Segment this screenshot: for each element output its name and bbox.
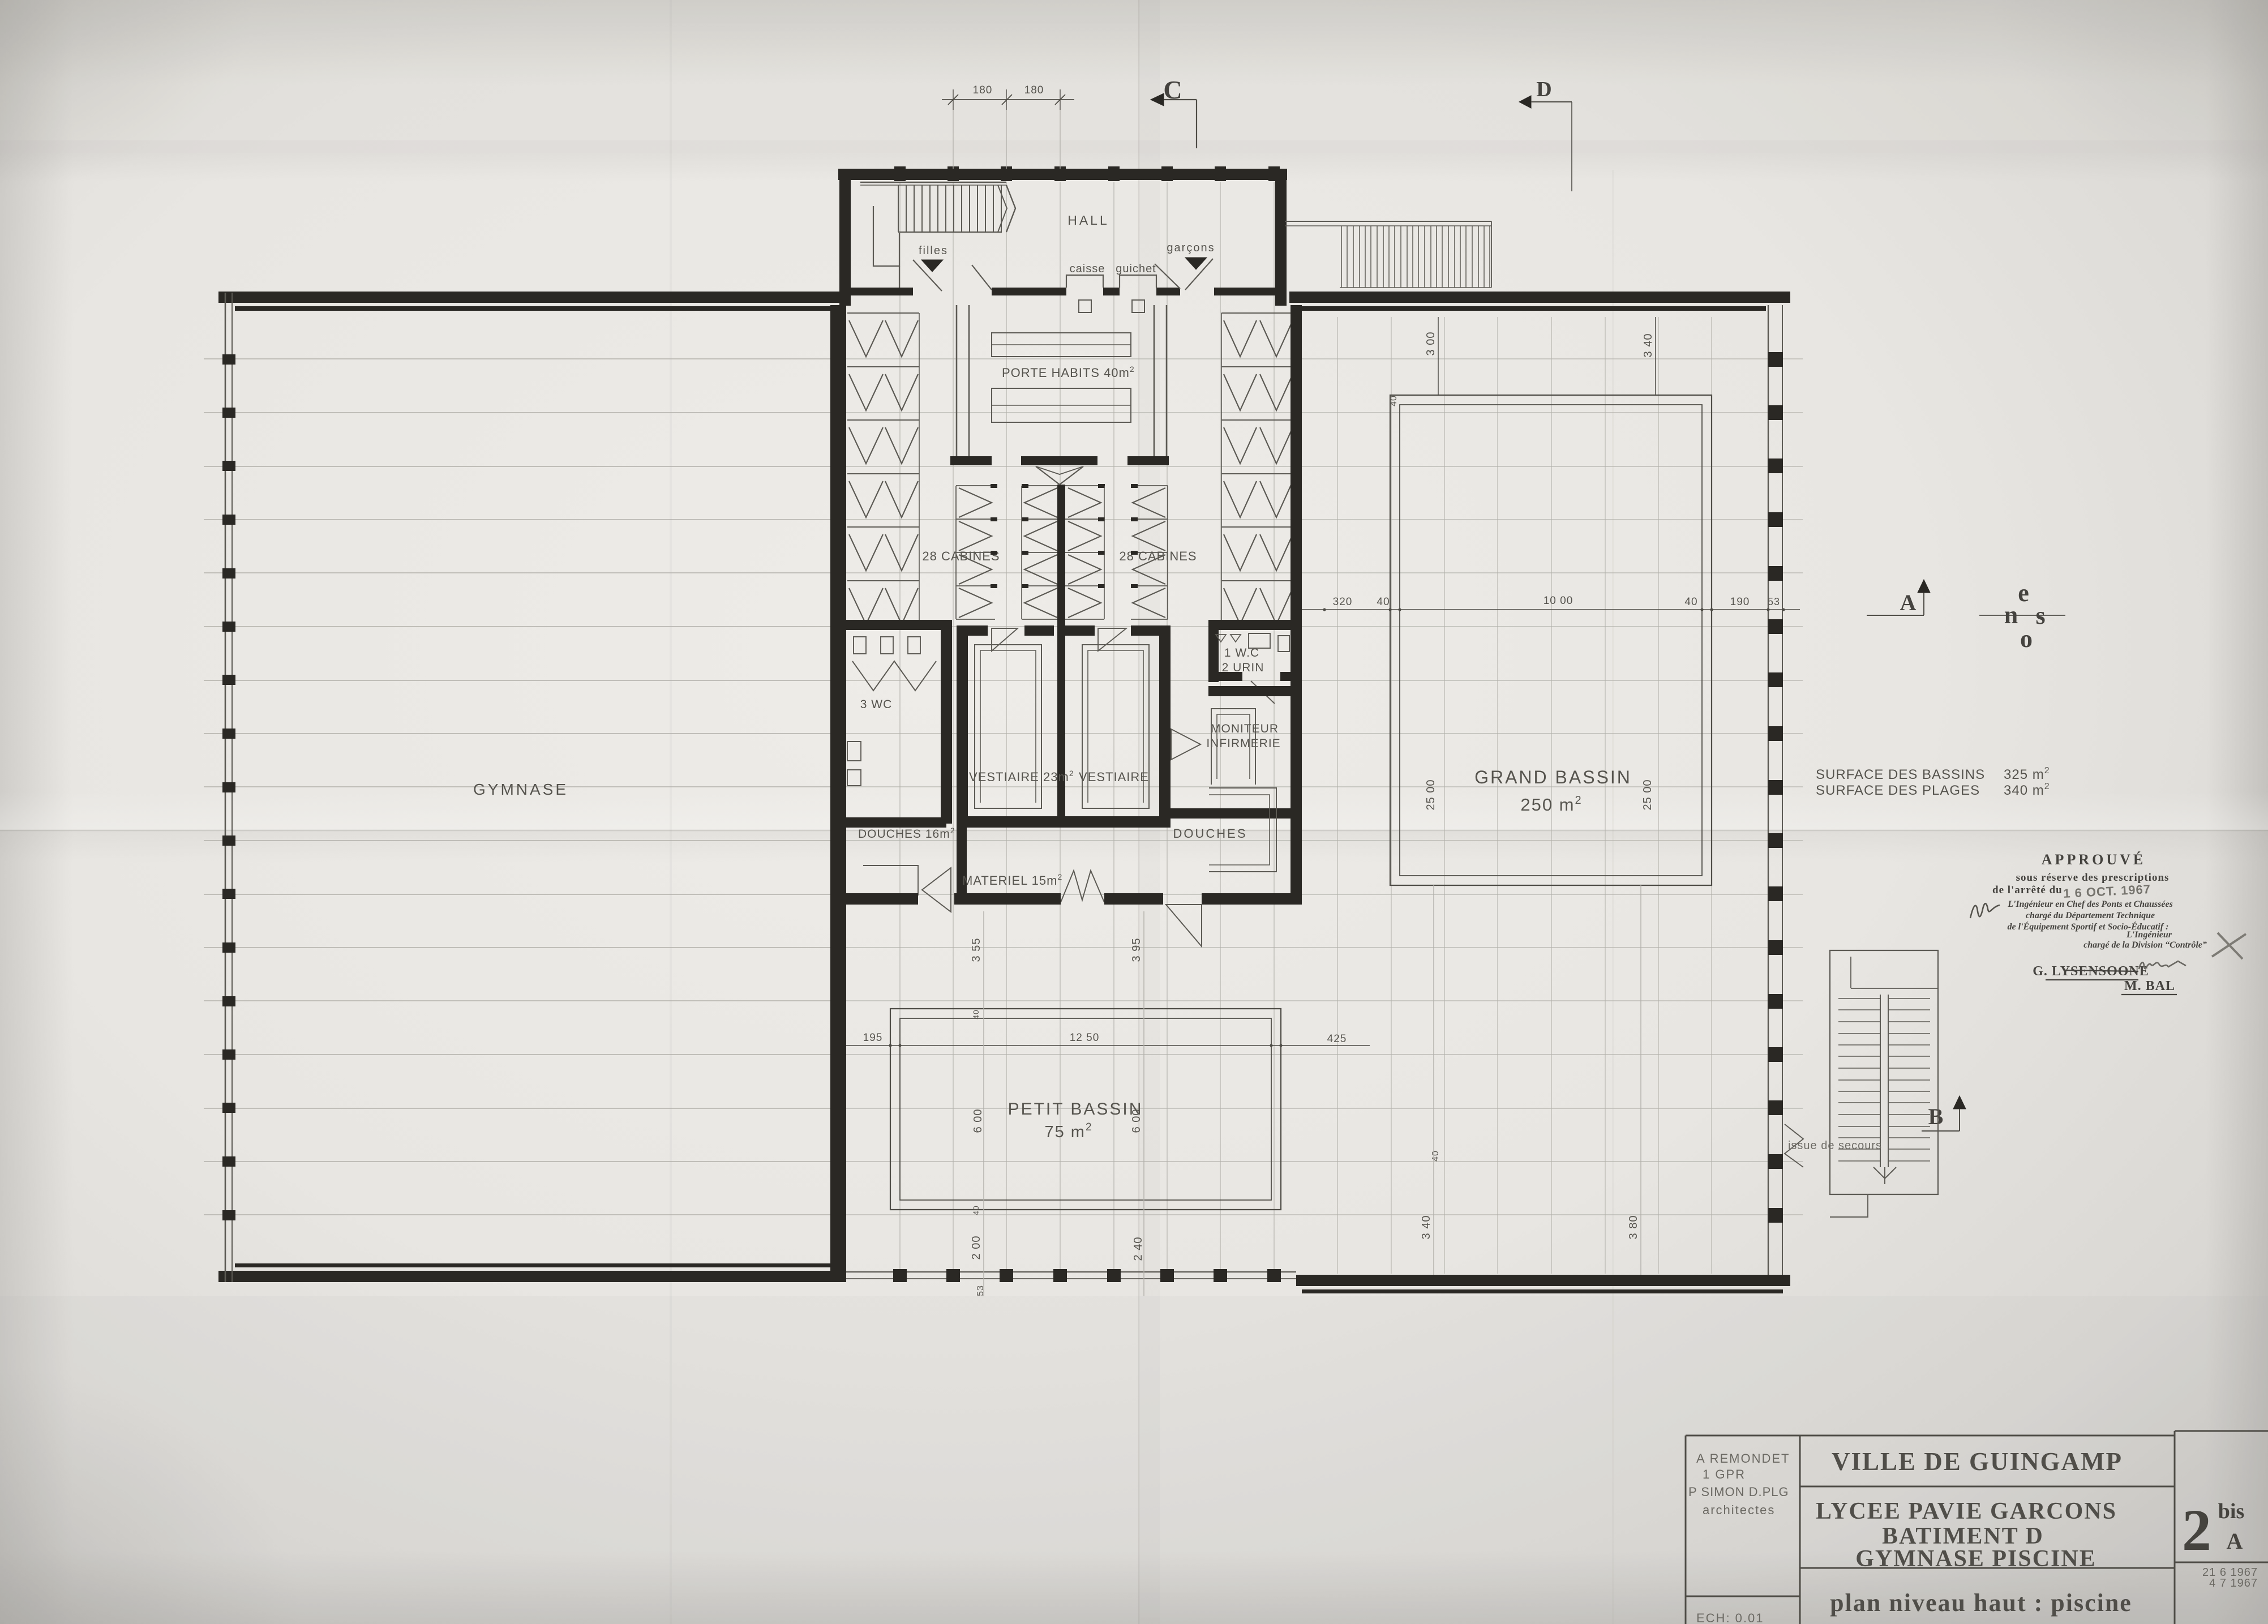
svg-text:L'Ingénieur en Chef des Ponts: L'Ingénieur en Chef des Ponts et Chaussé… — [2007, 899, 2173, 909]
svg-text:190: 190 — [1730, 596, 1750, 608]
svg-text:SURFACE DES PLAGES: SURFACE DES PLAGES — [1816, 783, 1980, 798]
svg-text:40: 40 — [1684, 596, 1697, 608]
svg-text:75 m2: 75 m2 — [1044, 1121, 1092, 1141]
svg-text:APPROUVÉ: APPROUVÉ — [2042, 851, 2146, 868]
svg-text:250 m2: 250 m2 — [1520, 794, 1582, 815]
svg-text:architectes: architectes — [1703, 1503, 1775, 1517]
svg-text:L'Ingénieur: L'Ingénieur — [2126, 930, 2172, 940]
svg-text:3 00: 3 00 — [1425, 332, 1437, 356]
svg-text:GYMNASE PISCINE: GYMNASE PISCINE — [1855, 1546, 2096, 1572]
svg-text:325 m2: 325 m2 — [2004, 766, 2050, 782]
svg-text:SURFACE DES BASSINS: SURFACE DES BASSINS — [1816, 767, 1985, 782]
svg-text:3 55: 3 55 — [970, 938, 983, 962]
svg-text:2: 2 — [2182, 1498, 2211, 1563]
svg-text:chargé du Département Techniqu: chargé du Département Technique — [2026, 911, 2155, 920]
svg-text:bis: bis — [2218, 1499, 2244, 1523]
svg-text:HALL: HALL — [1067, 213, 1109, 228]
svg-text:A: A — [1900, 590, 1917, 615]
svg-text:DOUCHES 16m2: DOUCHES 16m2 — [858, 826, 955, 841]
svg-text:40: 40 — [1389, 395, 1399, 406]
svg-text:de l'arrêté du: de l'arrêté du — [1992, 884, 2063, 896]
svg-text:VILLE DE GUINGAMP: VILLE DE GUINGAMP — [1832, 1447, 2123, 1476]
svg-text:3 95: 3 95 — [1130, 938, 1143, 962]
svg-text:GYMNASE: GYMNASE — [473, 781, 568, 798]
svg-text:guichet: guichet — [1116, 263, 1156, 275]
svg-text:PORTE HABITS 40m2: PORTE HABITS 40m2 — [1002, 365, 1135, 380]
svg-text:A: A — [2227, 1528, 2243, 1554]
svg-text:garçons: garçons — [1167, 242, 1215, 254]
svg-text:ECH: 0.01: ECH: 0.01 — [1696, 1611, 1764, 1624]
svg-text:40: 40 — [1431, 1150, 1440, 1162]
svg-text:PETIT BASSIN: PETIT BASSIN — [1008, 1100, 1143, 1119]
svg-text:e: e — [2018, 579, 2030, 607]
svg-text:2 40: 2 40 — [1132, 1237, 1144, 1261]
svg-text:A REMONDET: A REMONDET — [1696, 1451, 1790, 1466]
svg-text:40: 40 — [1377, 596, 1390, 608]
svg-text:MONITEUR: MONITEUR — [1211, 722, 1279, 735]
svg-text:180: 180 — [1024, 84, 1044, 96]
svg-text:6 00: 6 00 — [972, 1109, 984, 1133]
svg-text:n: n — [2004, 601, 2019, 629]
svg-text:25 00: 25 00 — [1425, 779, 1437, 810]
svg-text:GRAND BASSIN: GRAND BASSIN — [1474, 767, 1632, 787]
svg-text:4 7 1967: 4 7 1967 — [2209, 1577, 2258, 1589]
svg-text:plan niveau haut : piscine: plan niveau haut : piscine — [1830, 1589, 2132, 1617]
svg-text:s: s — [2035, 602, 2046, 629]
svg-text:P SIMON D.PLG: P SIMON D.PLG — [1688, 1485, 1789, 1499]
svg-text:320: 320 — [1333, 596, 1353, 608]
svg-text:caisse: caisse — [1070, 263, 1105, 275]
svg-text:6 00: 6 00 — [1130, 1109, 1143, 1133]
svg-text:340 m2: 340 m2 — [2004, 782, 2050, 798]
svg-text:53: 53 — [976, 1285, 985, 1296]
svg-text:2 URIN: 2 URIN — [1222, 661, 1264, 674]
svg-text:VESTIAIRE: VESTIAIRE — [1079, 770, 1149, 784]
svg-text:o: o — [2020, 625, 2034, 653]
svg-text:12 50: 12 50 — [1070, 1032, 1100, 1044]
svg-text:2 00: 2 00 — [970, 1236, 983, 1260]
svg-text:3 40: 3 40 — [1420, 1215, 1433, 1240]
svg-text:INFIRMERIE: INFIRMERIE — [1206, 737, 1280, 750]
svg-text:B: B — [1928, 1104, 1944, 1129]
svg-text:10 00: 10 00 — [1544, 595, 1574, 607]
svg-text:1 GPR: 1 GPR — [1703, 1467, 1746, 1481]
svg-text:3 40: 3 40 — [1642, 333, 1654, 358]
svg-text:VESTIAIRE 23m2: VESTIAIRE 23m2 — [969, 769, 1074, 784]
svg-text:MATERIEL 15m2: MATERIEL 15m2 — [962, 872, 1062, 888]
svg-text:DOUCHES: DOUCHES — [1173, 826, 1247, 841]
svg-text:40: 40 — [971, 1009, 980, 1019]
svg-text:195: 195 — [863, 1032, 883, 1044]
svg-text:180: 180 — [973, 84, 993, 96]
svg-text:chargé de la Division “Contrôl: chargé de la Division “Contrôle” — [2083, 940, 2207, 950]
svg-text:M. BAL: M. BAL — [2124, 979, 2175, 993]
svg-text:40: 40 — [971, 1205, 980, 1215]
svg-text:3 80: 3 80 — [1627, 1215, 1640, 1240]
svg-text:D: D — [1536, 78, 1551, 101]
svg-text:25 00: 25 00 — [1641, 779, 1654, 810]
svg-text:filles: filles — [919, 245, 948, 257]
svg-text:425: 425 — [1327, 1033, 1347, 1045]
svg-text:53: 53 — [1768, 596, 1780, 607]
svg-text:3 WC: 3 WC — [860, 698, 893, 711]
svg-text:LYCEE PAVIE GARCONS: LYCEE PAVIE GARCONS — [1816, 1498, 2117, 1524]
svg-text:issue de secours: issue de secours — [1788, 1139, 1882, 1152]
svg-text:28 CABINES: 28 CABINES — [1119, 549, 1197, 563]
